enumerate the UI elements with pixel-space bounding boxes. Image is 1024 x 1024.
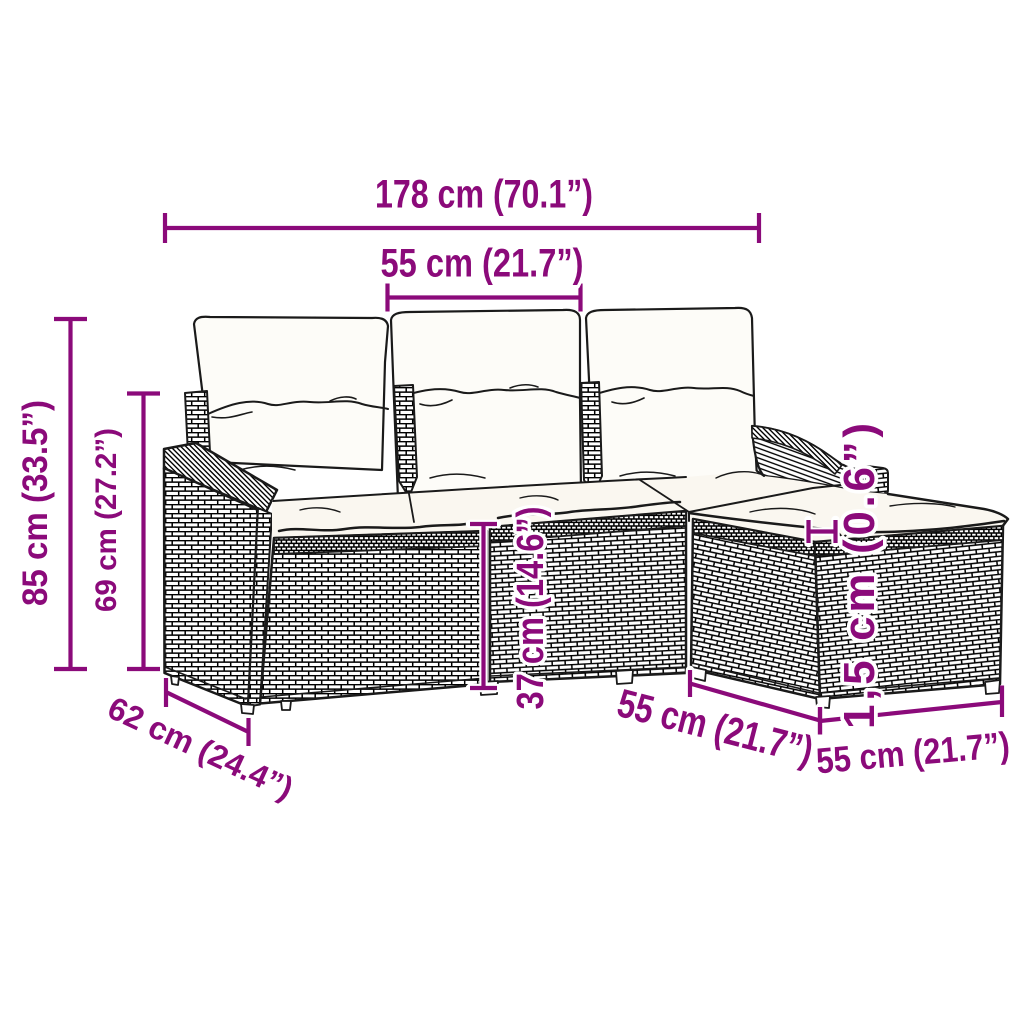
svg-text:55 cm (21.7”): 55 cm (21.7”): [613, 681, 818, 773]
svg-text:55 cm (21.7”): 55 cm (21.7”): [381, 242, 584, 286]
svg-text:178 cm (70.1”): 178 cm (70.1”): [375, 173, 593, 217]
svg-text:55 cm (21.7”): 55 cm (21.7”): [814, 724, 1011, 782]
svg-text:85 cm (33.5”): 85 cm (33.5”): [16, 400, 55, 606]
svg-text:69 cm (27.2”): 69 cm (27.2”): [90, 428, 123, 612]
svg-text:1,5 cm (0.6”): 1,5 cm (0.6”): [835, 423, 884, 729]
svg-text:37 cm (14.6”): 37 cm (14.6”): [510, 507, 552, 710]
